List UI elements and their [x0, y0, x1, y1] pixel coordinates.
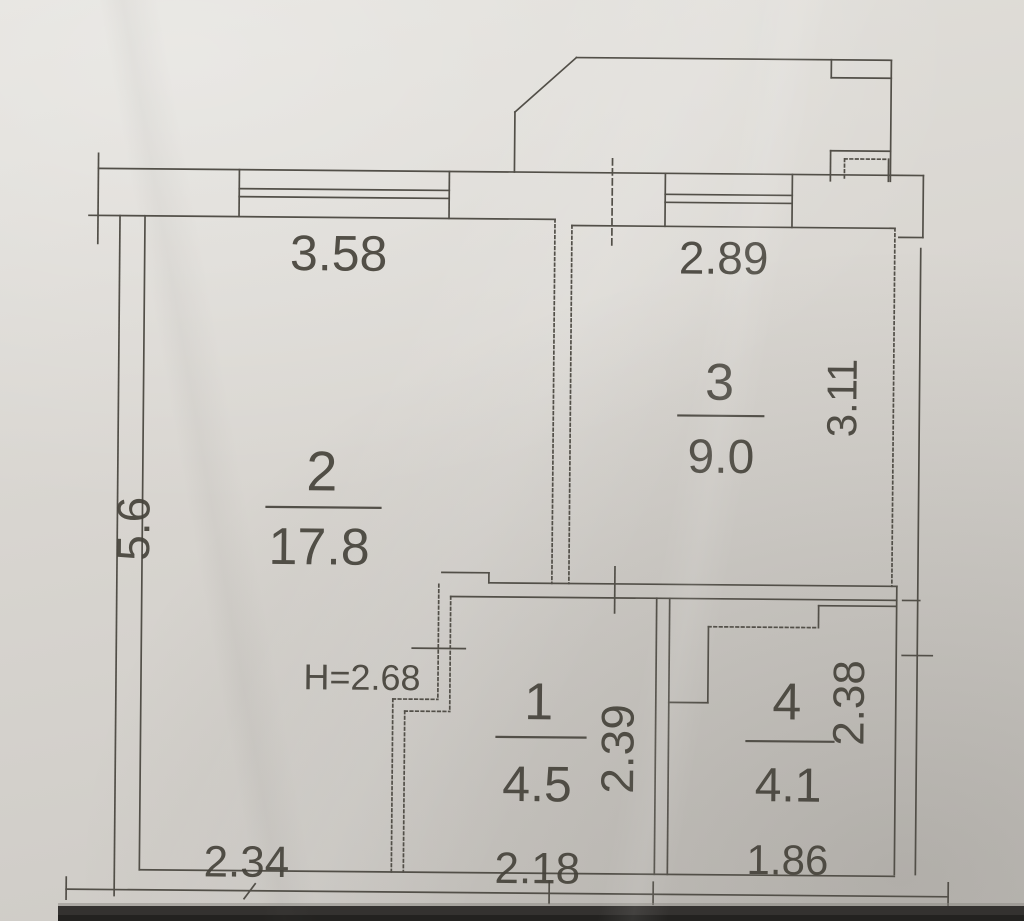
dim-room3-right-label: 3.11	[818, 358, 866, 437]
room-labels: 3.58 2.89 2 17.8 3 9.0 1 4.5 4 4.1 5.6 3…	[104, 223, 878, 896]
room1-number-label: 1	[524, 673, 553, 731]
room2-number-label: 2	[306, 439, 338, 502]
dim-room4-bottom-label: 1.86	[746, 836, 828, 884]
ceiling-height-label: H=2.68	[303, 656, 420, 698]
room2-area-label: 17.8	[268, 518, 370, 577]
floor-plan-photo: 3.58 2.89 2 17.8 3 9.0 1 4.5 4 4.1 5.6 3…	[0, 0, 1024, 921]
window-room2	[239, 170, 449, 219]
balcony-door	[844, 159, 888, 181]
room4-area-label: 4.1	[754, 759, 821, 813]
dim-room1-right-label: 2.39	[591, 704, 644, 794]
dim-room4-right-label: 2.38	[824, 660, 874, 746]
dim-room1-bottom-label: 2.18	[494, 844, 580, 894]
dim-room2-left-label: 5.6	[107, 496, 160, 560]
room1-area-label: 4.5	[502, 756, 572, 813]
room3-number-label: 3	[705, 354, 734, 412]
photo-bottom-edge	[58, 903, 1024, 921]
room4-number-label: 4	[772, 673, 801, 731]
floor-plan-drawing: 3.58 2.89 2 17.8 3 9.0 1 4.5 4 4.1 5.6 3…	[0, 0, 1024, 921]
dim-room3-top-label: 2.89	[679, 231, 769, 284]
dim-room2-bottom-label: 2.34	[203, 837, 289, 887]
window-room3	[665, 173, 792, 227]
dim-room2-top-label: 3.58	[290, 225, 388, 282]
balcony-outline	[514, 57, 891, 181]
room3-area-label: 9.0	[687, 431, 754, 485]
